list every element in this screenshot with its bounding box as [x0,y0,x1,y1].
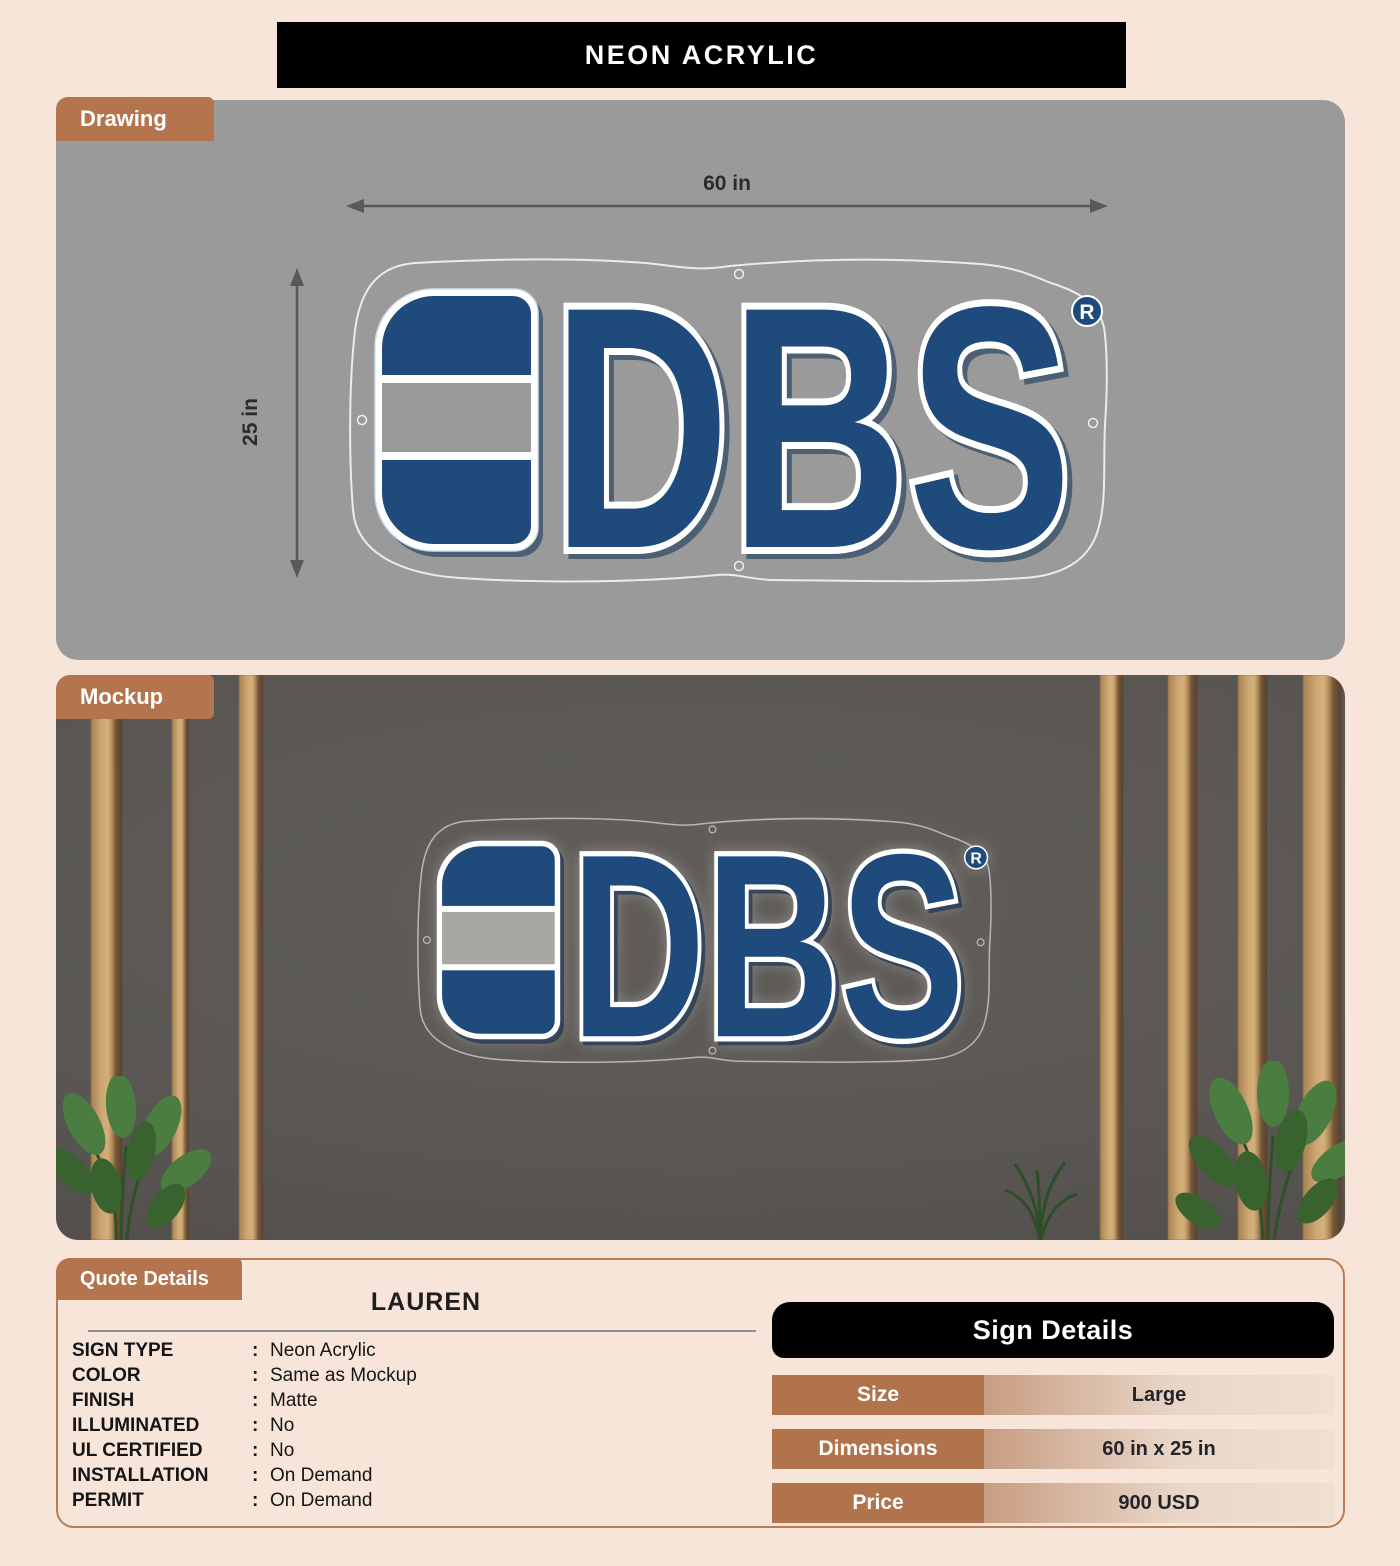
field-separator: : [252,1438,270,1463]
mockup-tab-label: Mockup [80,684,163,710]
wood-slat [1100,675,1123,1240]
mount-hole-right [977,939,984,946]
name-divider [88,1330,756,1332]
icon-band-top [382,296,531,375]
plant-left [56,1076,306,1240]
quote-tab-label: Quote Details [80,1268,209,1291]
icon-band-bottom [382,460,531,544]
sign-details-row-size: Size Large [772,1375,1334,1415]
quote-field-row: INSTALLATION : On Demand [72,1463,762,1488]
icon-band-middle [442,912,555,964]
width-dimension-label: 60 in [346,172,1108,196]
mount-hole-right [1089,419,1098,428]
sign-details-header: Sign Details [772,1302,1334,1358]
mount-hole-left [423,937,430,944]
icon-band-top [442,846,555,906]
field-label: ILLUMINATED [72,1413,252,1438]
field-label: FINISH [72,1388,252,1413]
quote-field-row: COLOR : Same as Mockup [72,1363,762,1388]
drawing-panel: 60 in 25 in [56,100,1345,660]
drawing-tab-label: Drawing [80,106,167,132]
row-value: Large [984,1375,1334,1415]
quote-field-row: SIGN TYPE : Neon Acrylic [72,1338,762,1363]
row-value: 900 USD [984,1483,1334,1523]
field-separator: : [252,1363,270,1388]
field-label: PERMIT [72,1488,252,1513]
logo-icon [437,841,560,1039]
quote-fields: SIGN TYPE : Neon Acrylic COLOR : Same as… [72,1338,762,1513]
field-value: Matte [270,1388,762,1413]
mockup-panel: DBS DBS R [56,675,1345,1240]
height-dimension-arrow [287,268,307,578]
page-title: NEON ACRYLIC [277,22,1126,88]
row-label: Size [772,1375,984,1415]
row-label: Price [772,1483,984,1523]
mount-hole-left [358,416,367,425]
field-value: Same as Mockup [270,1363,762,1388]
quote-field-row: ILLUMINATED : No [72,1413,762,1438]
plant-right [1133,1061,1345,1240]
field-label: SIGN TYPE [72,1338,252,1363]
drawing-section-tab: Drawing [56,97,214,141]
plant-small-center [985,1152,1095,1240]
brand-text: DBS [552,255,1072,585]
registered-mark: R [1072,296,1102,326]
sign-details-row-price: Price 900 USD [772,1483,1334,1523]
field-separator: : [252,1413,270,1438]
dbs-sign-mockup: DBS DBS R [414,815,995,1065]
field-value: No [270,1438,762,1463]
logo-icon [375,289,538,551]
quote-field-row: UL CERTIFIED : No [72,1438,762,1463]
field-separator: : [252,1488,270,1513]
field-separator: : [252,1463,270,1488]
field-value: On Demand [270,1463,762,1488]
width-dimension-arrow [346,196,1108,216]
quote-field-row: FINISH : Matte [72,1388,762,1413]
field-label: COLOR [72,1363,252,1388]
field-separator: : [252,1388,270,1413]
sign-details-row-dimensions: Dimensions 60 in x 25 in [772,1429,1334,1469]
field-separator: : [252,1338,270,1363]
field-value: On Demand [270,1488,762,1513]
row-label: Dimensions [772,1429,984,1469]
icon-band-bottom [442,970,555,1034]
row-value: 60 in x 25 in [984,1429,1334,1469]
brand-text: DBS [571,815,965,1065]
height-dimension-label: 25 in [239,367,263,477]
dbs-sign-drawing: DBS DBS R [345,255,1112,585]
svg-text:R: R [1079,301,1094,324]
quote-section-tab: Quote Details [56,1258,242,1300]
field-label: UL CERTIFIED [72,1438,252,1463]
quote-field-row: PERMIT : On Demand [72,1488,762,1513]
svg-text:R: R [970,850,982,867]
field-value: No [270,1413,762,1438]
icon-band-middle [382,383,531,452]
registered-mark: R [965,846,988,869]
field-value: Neon Acrylic [270,1338,762,1363]
field-label: INSTALLATION [72,1463,252,1488]
mockup-section-tab: Mockup [56,675,214,719]
